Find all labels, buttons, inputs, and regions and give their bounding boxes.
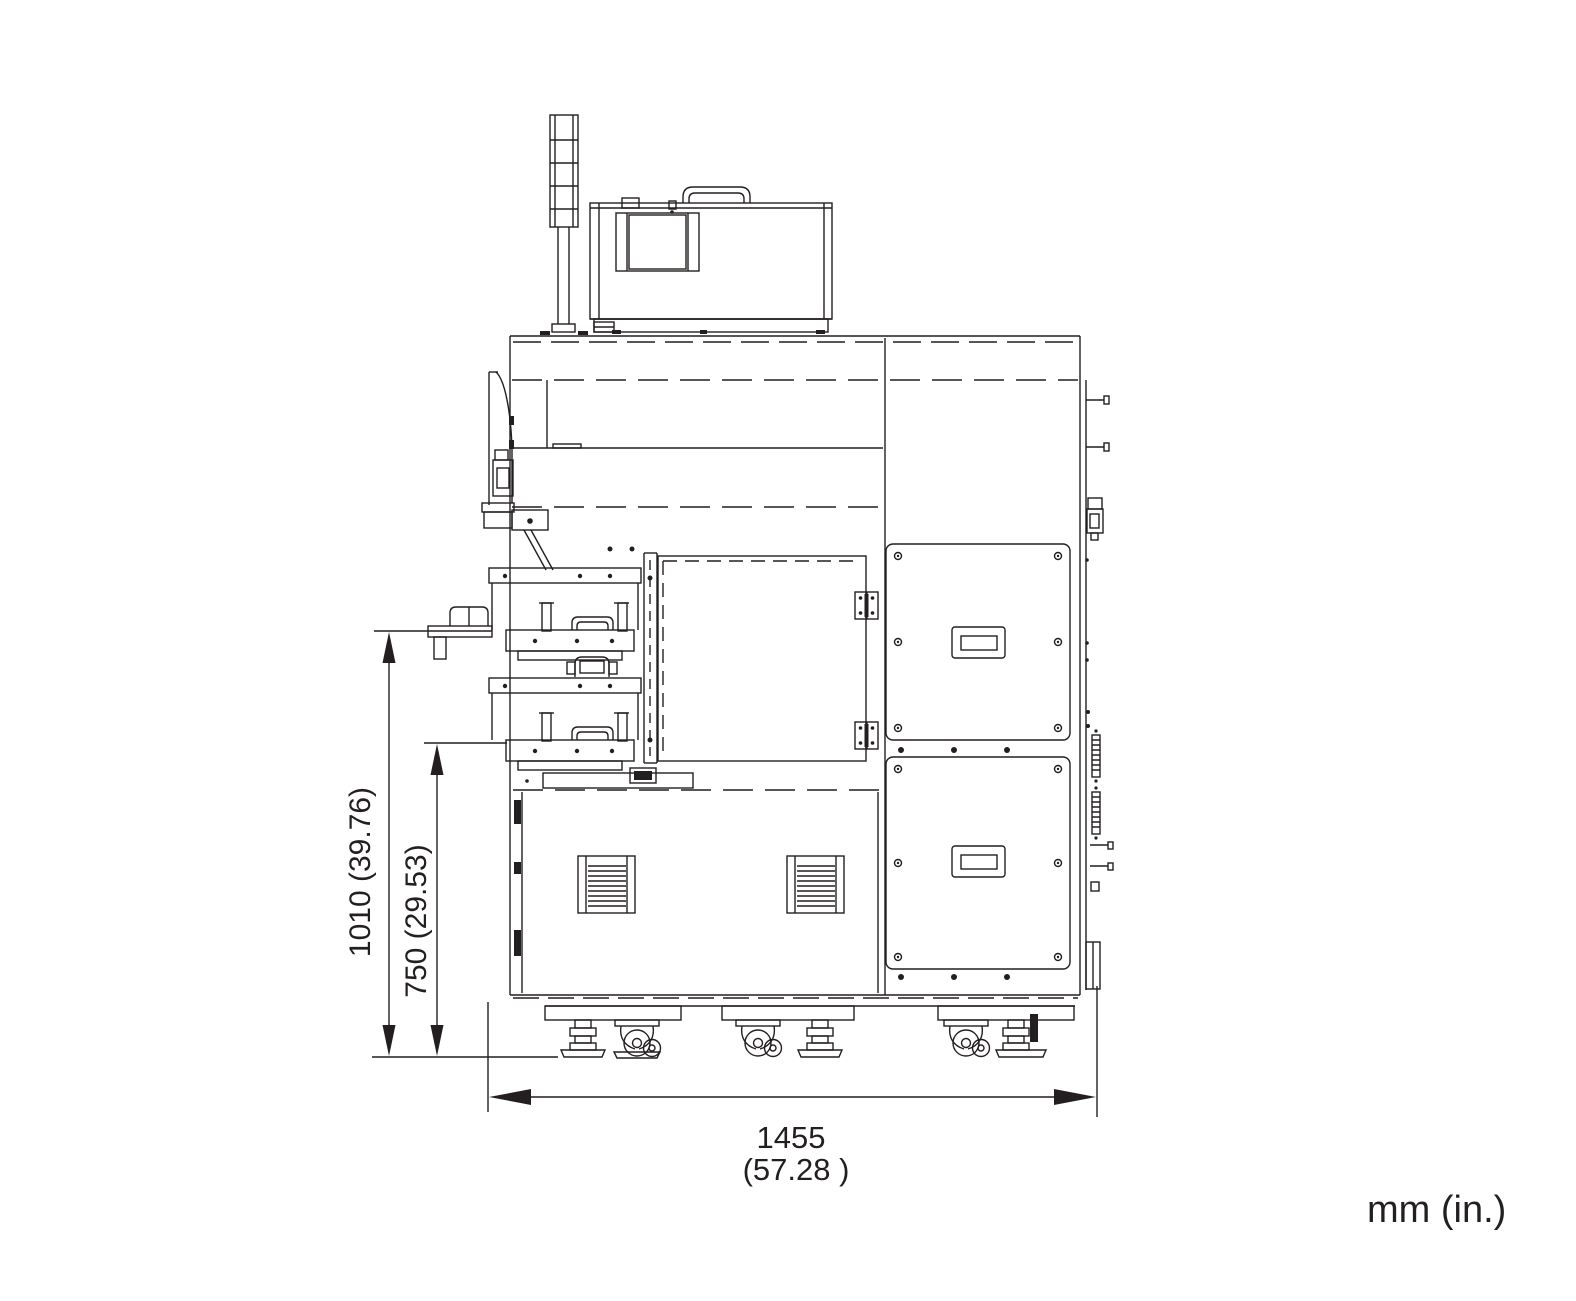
drawing-background	[0, 0, 1576, 1301]
dim-height-overall-label: 1010 (39.76)	[344, 787, 377, 957]
dim-height-tray-label: 750 (29.53)	[400, 844, 433, 997]
dim-width-label-mm: 1455	[757, 1120, 826, 1155]
dim-width-label-inches: (57.28 )	[743, 1152, 850, 1187]
drawing-canvas: 1010 (39.76) 750 (29.53) 1455 (57.28 ) m…	[0, 0, 1576, 1301]
technical-drawing: 1010 (39.76) 750 (29.53) 1455 (57.28 ) m…	[0, 0, 1576, 1301]
units-note: mm (in.)	[1367, 1189, 1506, 1231]
